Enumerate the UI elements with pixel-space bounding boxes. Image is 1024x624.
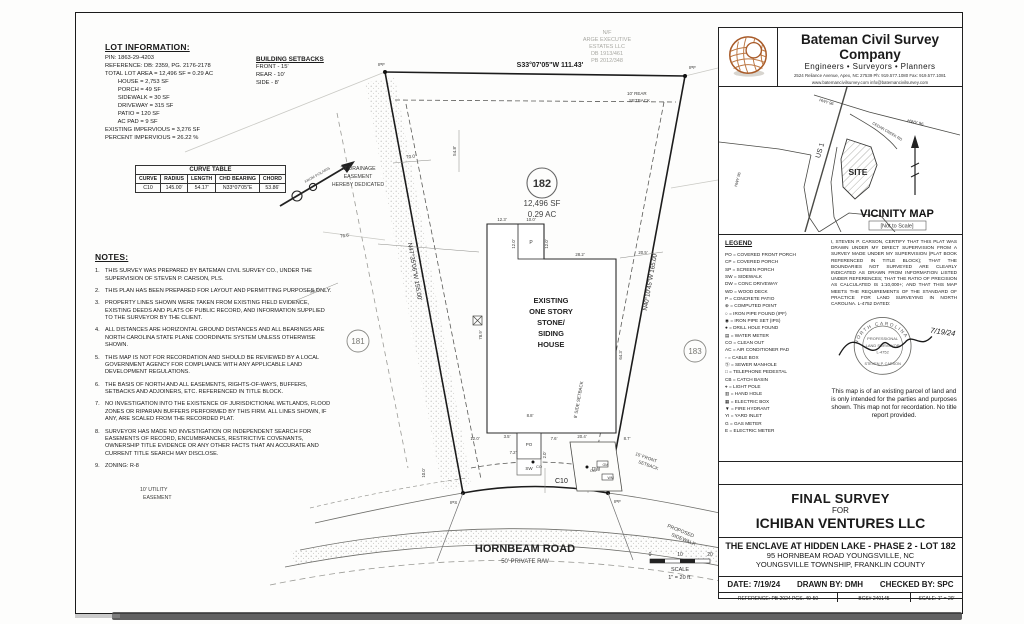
certification-block: I, STEVEN P. CARSON, CERTIFY THAT THIS P…	[831, 239, 957, 420]
drawn-by-field: DRAWN BY: DMH	[797, 580, 863, 589]
drainage-label3: HEREBY DEDICATED	[332, 182, 385, 188]
scan-shadow	[112, 612, 962, 620]
ipf-label-tr: IPF	[689, 65, 696, 70]
utility-label1: 10' UTILITY	[140, 487, 168, 493]
scale-ratio: 1" = 20 ft.	[668, 575, 692, 581]
vicinity-us1-label: US 1	[815, 142, 826, 159]
house-footprint	[473, 224, 622, 491]
legend-item: SP = SCREEN PORCH	[725, 266, 827, 273]
title-for: FOR	[719, 506, 962, 515]
company-web: www.batemancivilsurvey.com info@batemanc…	[778, 80, 962, 87]
cleanout-1	[532, 461, 535, 464]
legend-item: PO = COVERED FRONT PORCH	[725, 251, 827, 258]
ips-label-bl: IPS	[450, 500, 457, 505]
plat-drawing: FROM POLARIS N/F ARGE EXECUTIVE ESTATES …	[75, 10, 718, 612]
title-block-date-row: DATE: 7/19/24 DRAWN BY: DMH CHECKED BY: …	[719, 577, 962, 593]
vicinity-not-to-scale: [Not to Scale]	[880, 224, 913, 230]
legend-item: AC = AIR CONDITIONER PAD	[725, 346, 827, 353]
dim-8-7: 8.7'	[624, 436, 631, 441]
cleanout-2	[586, 466, 589, 469]
legend-item: ▫ = CABLE BOX	[725, 354, 827, 361]
right-panel: Bateman Civil Survey Company Engineers •…	[718, 27, 963, 599]
title-block-ref-row: REFERENCE: PB 2024 PGS. 49-50 BCS# 24014…	[719, 593, 962, 602]
dim-10-0-b: 10.0'	[421, 468, 426, 477]
legend-item: ○ = IRON PIPE FOUND (IPF)	[725, 310, 827, 317]
date-field: DATE: 7/19/24	[727, 580, 780, 589]
scale-field: SCALE: 1" = 20'	[911, 593, 962, 602]
dim-54-8: 54.8'	[452, 146, 457, 156]
legend-item: G = GAS METER	[725, 420, 827, 427]
seal-line1: PROFESSIONAL	[867, 336, 899, 341]
dim-7-2: 7.2'	[510, 450, 517, 455]
legend-cert-section: LEGEND PO = COVERED FRONT PORCH CP = COV…	[719, 235, 962, 462]
vicinity-hwy96-label-c: HWY 96	[733, 171, 742, 187]
seal-license: L-4752	[876, 350, 888, 355]
project-name: THE ENCLAVE AT HIDDEN LAKE - PHASE 2 - L…	[719, 541, 962, 551]
adjoiner-name: ARGE EXECUTIVE	[583, 37, 632, 43]
legend-item: ● = DRILL HOLE FOUND	[725, 324, 827, 331]
dim-2-0: 2.0'	[542, 451, 547, 458]
cleanout-label-1: CO	[536, 464, 542, 469]
legend-item: CO = CLEAN OUT	[725, 339, 827, 346]
property-line-rear	[385, 72, 685, 76]
project-address: 95 HORNBEAM ROAD YOUNGSVILLE, NC	[719, 551, 962, 560]
title-client: ICHIBAN VENTURES LLC	[719, 515, 962, 531]
checked-by-field: CHECKED BY: SPC	[880, 580, 954, 589]
legend-item: Ⓢ = SEWER MANHOLE	[725, 361, 827, 368]
legend-item: ◉ = IRON PIPE SET (IPS)	[725, 317, 827, 324]
ipf-label-tl: IPF	[378, 62, 385, 67]
legend-item: ⊕ = COMPUTED POINT	[725, 302, 827, 309]
utility-label2: EASEMENT	[143, 495, 172, 501]
drainage-label1: 20' DRAINAGE	[340, 166, 376, 172]
reference-field: REFERENCE: PB 2024 PGS. 49-50	[719, 593, 838, 602]
title-block: FINAL SURVEY FOR ICHIBAN VENTURES LLC TH…	[719, 485, 962, 602]
scale-20: 20	[707, 552, 713, 558]
scale-0: 0	[649, 552, 652, 558]
lot-number: 182	[533, 178, 551, 190]
lot-181-label: 181	[351, 337, 365, 346]
house-line1: EXISTING	[533, 296, 568, 305]
curve-c10-label: C10	[555, 478, 568, 485]
vicinity-north-arrow	[911, 135, 919, 195]
company-address: 2524 Reliance Avenue, Apex, NC 27539 Ph:…	[778, 73, 962, 80]
legend-item: ⌖ = LIGHT POLE	[725, 383, 827, 390]
scale-word: SCALE	[671, 567, 689, 573]
legend-item: E = ELECTRIC METER	[725, 427, 827, 434]
legend-title: LEGEND	[725, 239, 827, 249]
sidewalk-label: SW	[525, 466, 533, 471]
certification-text: I, STEVEN P. CARSON, CERTIFY THAT THIS P…	[831, 239, 957, 307]
ac-pad	[473, 316, 482, 325]
title-block-top: FINAL SURVEY FOR ICHIBAN VENTURES LLC	[719, 485, 962, 538]
dim-7-6: 7.6'	[551, 436, 558, 441]
dim-3-5: 3.5'	[504, 434, 511, 439]
legend-item: WD = WOOD DECK	[725, 288, 827, 295]
dim-28-2: 28.2'	[575, 252, 584, 257]
legend-item: □ = TELEPHONE PEDESTAL	[725, 368, 827, 375]
rear-setback-label2: SETBACK	[629, 98, 650, 103]
dim-64-3: 64.3'	[618, 350, 623, 359]
drainage-label2: EASEMENT	[344, 174, 373, 180]
adjoiner-nf: N/F	[603, 30, 613, 36]
adjoiner-name2: ESTATES LLC	[589, 44, 625, 50]
company-logo-icon	[725, 34, 771, 80]
legend-item: CB = CATCH BASIN	[725, 376, 827, 383]
signature-date: 7/19/24	[930, 326, 956, 338]
legend-item: ▥ = HAND HOLE	[725, 390, 827, 397]
vicinity-map-section: SITE US 1 HWY 96 HWY 96 HWY 96 CEDAR CRE…	[719, 87, 962, 235]
company-name: Bateman Civil Survey Company	[778, 32, 962, 62]
bearing-rear: S33°07'05"W 111.43'	[517, 61, 584, 69]
house-line3: STONE/	[537, 318, 566, 327]
seal-name: STEVEN P. CARSON	[864, 362, 901, 366]
road-far-edge	[270, 560, 718, 598]
north-arrow-label: FROM POLARIS	[304, 166, 331, 184]
legend-item: DW = CONC DRIVEWAY	[725, 280, 827, 287]
blank-section	[719, 462, 962, 485]
porch-label: PO	[526, 442, 533, 447]
dim-12-3: 12.3'	[497, 217, 506, 222]
cleanout-label-2: CO	[590, 468, 596, 473]
vicinity-hwy96-label-a: HWY 96	[907, 118, 925, 127]
dim-10-0: 10.0'	[526, 217, 535, 222]
dim-20-5: 20.5'	[638, 250, 647, 255]
legend-item: P = CONCRETE PATIO	[725, 295, 827, 302]
road-rw: 50' PRIVATE R/W	[501, 559, 549, 565]
bearing-right: N40°10'45"W 165.00'	[642, 252, 659, 311]
legend-item: CP = COVERED PORCH	[725, 258, 827, 265]
legend-block: LEGEND PO = COVERED FRONT PORCH CP = COV…	[725, 239, 827, 434]
road-name: HORNBEAM ROAD	[475, 543, 575, 555]
dim-20-0: 20.0'	[309, 287, 320, 295]
dim-8-8: 8.8'	[527, 413, 534, 418]
house-line4: SIDING	[538, 329, 564, 338]
dim-12-0-a: 12.0'	[511, 239, 516, 248]
vicinity-map: SITE US 1 HWY 96 HWY 96 HWY 96 CEDAR CRE…	[719, 87, 960, 232]
legend-item: SW = SIDEWALK	[725, 273, 827, 280]
vicinity-site-label: SITE	[849, 167, 868, 177]
company-logo-box	[719, 28, 778, 86]
dim-12-0-b: 12.0'	[544, 239, 549, 248]
gas-meter-label: GM	[603, 463, 609, 467]
adjoiner-pb: PB 2012/348	[591, 58, 623, 64]
dim-12-0-c: 12.0'	[470, 436, 479, 441]
title-final-survey: FINAL SURVEY	[719, 491, 962, 506]
dim-70: 70.0'	[406, 154, 416, 160]
house-line5: HOUSE	[538, 340, 565, 349]
scale-10: 10	[677, 552, 683, 558]
scan-shadow-left	[75, 614, 120, 618]
title-block-project: THE ENCLAVE AT HIDDEN LAKE - PHASE 2 - L…	[719, 538, 962, 577]
legend-item: YI = YARD INLET	[725, 412, 827, 419]
legend-item: ▦ = ELECTRIC BOX	[725, 398, 827, 405]
company-tagline: Engineers • Surveyors • Planners	[778, 62, 962, 71]
bcs-field: BCS# 240145	[838, 593, 911, 602]
rear-setback-label1: 10' REAR	[627, 91, 647, 96]
lot-area-sf: 12,496 SF	[524, 199, 561, 208]
dim-76-6: 76.6'	[340, 232, 350, 238]
water-meter-label: WM	[608, 476, 614, 480]
legend-item: ▼ = FIRE HYDRANT	[725, 405, 827, 412]
vicinity-hwy96-label-b: HWY 96	[819, 97, 835, 106]
adjoiner-db: DB 1913/461	[591, 51, 623, 57]
ipf-label-br: IPF	[614, 499, 621, 504]
disclaimer-text: This map is of an existing parcel of lan…	[831, 388, 957, 420]
vicinity-title: VICINITY MAP	[860, 208, 934, 220]
survey-sheet: LOT INFORMATION: PIN: 1863-29-4203 REFER…	[0, 0, 1024, 624]
house-line2: ONE STORY	[529, 307, 573, 316]
legend-item: ▤ = WATER METER	[725, 332, 827, 339]
property-line-left	[385, 72, 463, 493]
project-township: YOUNGSVILLE TOWNSHIP, FRANKLIN COUNTY	[719, 560, 962, 569]
dim-20-4: 20.4'	[577, 434, 586, 439]
lot-183-label: 183	[688, 347, 702, 356]
company-header: Bateman Civil Survey Company Engineers •…	[719, 28, 962, 87]
dim-78-9: 78.9'	[478, 330, 483, 339]
surveyor-seal: NORTH CAROLINA PROFESSIONAL LAND SURVEYO…	[831, 308, 957, 380]
